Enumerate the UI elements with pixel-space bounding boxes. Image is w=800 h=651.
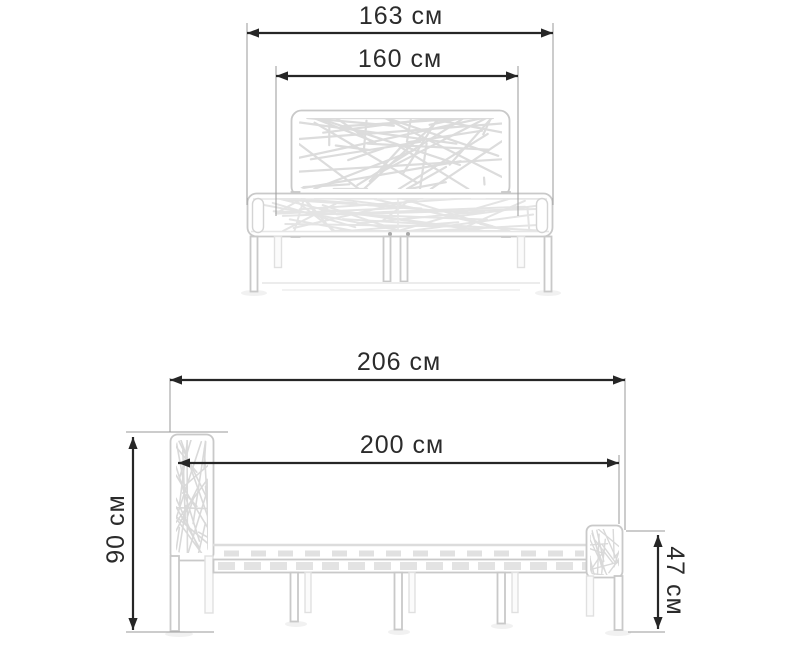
front-leg-center-left <box>384 237 391 282</box>
dimension-side-footboard-height: 47 см <box>626 531 689 632</box>
side-leg-front-3 <box>498 573 506 624</box>
bed-side-view-illustration <box>165 435 631 638</box>
front-leg-center-right <box>401 237 408 282</box>
side-leg-back-2 <box>409 573 415 613</box>
diagram-stage: 163 см 160 см 206 см 200 см 90 см 47 см <box>0 0 800 651</box>
side-headboard-post-back <box>205 556 213 613</box>
side-footboard-post-back <box>587 576 594 616</box>
lattice-line <box>484 178 485 185</box>
diagram-canvas: 163 см 160 см 206 см 200 см 90 см 47 см <box>0 0 800 651</box>
front-leg-back-right <box>518 237 525 268</box>
dimension-label: 206 см <box>357 348 441 376</box>
dimension-label: 160 см <box>358 45 442 73</box>
bed-front-view-illustration <box>241 111 561 297</box>
dimension-label: 200 см <box>360 431 444 459</box>
front-leg-outer-left <box>251 237 258 292</box>
bolt-dot <box>388 232 392 236</box>
dimension-side-sleeping-length: 200 см <box>178 431 619 524</box>
side-leg-back-1 <box>305 573 311 613</box>
side-footboard-post-front <box>615 576 623 630</box>
side-headboard-post-front <box>171 556 180 631</box>
dimension-label: 90 см <box>102 494 130 563</box>
bolt-dot <box>406 232 410 236</box>
side-leg-back-3 <box>512 573 518 613</box>
lattice-line <box>176 508 208 509</box>
front-leg-outer-right <box>545 237 552 292</box>
dimension-label: 47 см <box>661 546 689 615</box>
front-rail-end-left <box>253 199 264 233</box>
dimension-label: 163 см <box>359 2 443 30</box>
side-leg-front-1 <box>291 573 299 622</box>
front-leg-back-left <box>275 237 282 268</box>
front-rail-end-right <box>537 199 548 233</box>
side-leg-front-2 <box>395 573 403 630</box>
leg-shadow <box>605 630 631 636</box>
